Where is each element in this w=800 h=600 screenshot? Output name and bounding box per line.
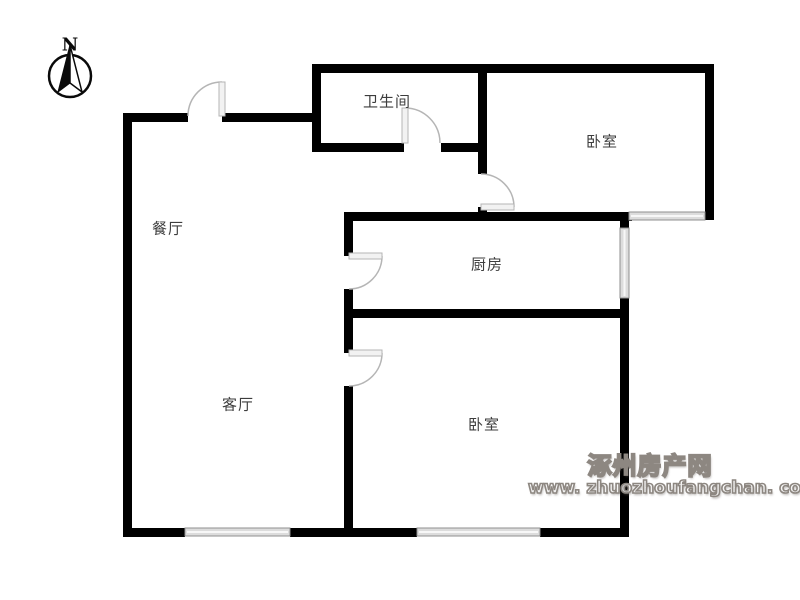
wall-middle-b bbox=[344, 289, 353, 353]
wall-middle-a bbox=[344, 212, 353, 256]
compass-north-label: N bbox=[62, 35, 78, 56]
watermark-site-url: www. zhuozhoufangchan. com bbox=[528, 480, 772, 497]
door-swing-icon bbox=[481, 174, 514, 210]
window-icon bbox=[417, 528, 540, 536]
door-swing-icon bbox=[349, 350, 382, 386]
wall-top bbox=[312, 64, 714, 73]
watermark: 涿州房产网 www. zhuozhoufangchan. com bbox=[528, 454, 772, 497]
wall-dining-top-right bbox=[222, 113, 317, 122]
wall-bottom-c bbox=[540, 528, 629, 537]
wall-bathroom-left bbox=[312, 64, 321, 152]
wall-middle-c bbox=[344, 386, 353, 537]
wall-bedroom-top-left bbox=[478, 64, 487, 174]
room-label-bathroom: 卫生间 bbox=[363, 91, 411, 112]
window-icon bbox=[629, 212, 705, 220]
window-icon bbox=[620, 228, 629, 298]
room-label-kitchen: 厨房 bbox=[471, 254, 503, 275]
door-swing-icon bbox=[402, 108, 440, 143]
room-label-dining-room: 餐厅 bbox=[152, 218, 184, 239]
watermark-site-name: 涿州房产网 bbox=[528, 454, 772, 478]
door-swing-icon bbox=[349, 253, 382, 289]
wall-bottom-b bbox=[290, 528, 417, 537]
window-icon bbox=[185, 528, 290, 536]
door-swing-icon bbox=[188, 82, 225, 116]
room-label-bedroom-bottom: 卧室 bbox=[468, 414, 500, 435]
wall-bathroom-bottom-a bbox=[312, 143, 404, 152]
wall-right-mid-stub bbox=[620, 212, 629, 228]
wall-bottom-a bbox=[123, 528, 185, 537]
wall-kitchen-bottom bbox=[344, 309, 629, 318]
wall-right-outer bbox=[705, 64, 714, 220]
wall-kitchen-top bbox=[344, 212, 632, 221]
wall-dining-top-left bbox=[123, 113, 188, 122]
room-label-living-room: 客厅 bbox=[222, 394, 254, 415]
wall-left-outer bbox=[123, 113, 132, 537]
room-label-bedroom-top: 卧室 bbox=[586, 131, 618, 152]
floorplan-canvas: N 卫生间 卧室 餐厅 厨房 客厅 卧室 涿州房产网 www. zhuozhou… bbox=[0, 0, 800, 600]
wall-right-lower bbox=[620, 298, 629, 537]
